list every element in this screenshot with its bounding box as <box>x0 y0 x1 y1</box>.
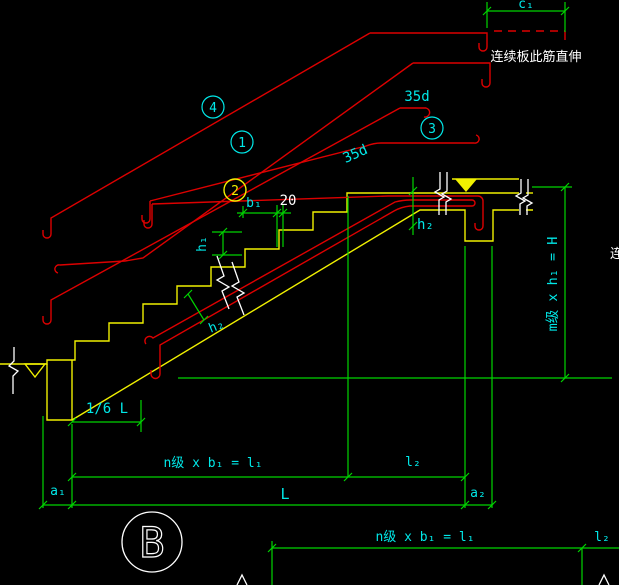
dim-nosing-20-label: 20 <box>280 193 297 209</box>
detail-mark-letter: B <box>139 518 164 567</box>
flight-end-face <box>47 360 72 420</box>
dim-h2-slab-lines <box>188 294 204 320</box>
level-symbol-lower <box>25 364 45 377</box>
stair-outline <box>0 179 533 420</box>
stair-soffit-and-beam <box>72 210 533 420</box>
stair-reinforcement-detail-drawing: 4 1 2 3 c₁ 连续板此筋直伸 35d 35d b₁ 20 h₁ h₂ h… <box>0 0 619 585</box>
dim-bottom-row-lines <box>272 541 619 585</box>
anchorage-35d-top-label: 35d <box>404 89 429 105</box>
dim-sixth-l-label: 1/6 L <box>86 401 128 417</box>
annotations: c₁ 连续板此筋直伸 35d 35d b₁ 20 h₁ h₂ h₂ m级 x h… <box>50 0 619 545</box>
dim-b1-label: b₁ <box>246 196 262 211</box>
dim-run-row-lines <box>72 196 465 477</box>
rebar-4-line <box>43 33 487 238</box>
cad-drawing-canvas: 4 1 2 3 c₁ 连续板此筋直伸 35d 35d b₁ 20 h₁ h₂ h… <box>0 0 619 585</box>
dim-c1-label: c₁ <box>518 0 534 12</box>
dim-run-bottom-label: n级 x b₁ = l₁ <box>375 530 474 545</box>
bar-tag-3-label: 3 <box>428 122 436 137</box>
dim-l2-label: l₂ <box>405 455 421 470</box>
dim-h2-slab-label: h₂ <box>207 317 227 337</box>
bar-tag-4-label: 4 <box>209 101 217 116</box>
dim-h1-label: h₁ <box>195 236 210 252</box>
bar-tag-1-label: 1 <box>238 136 246 151</box>
dim-run-label: n级 x b₁ = l₁ <box>163 456 262 471</box>
slab-break-line <box>217 256 244 315</box>
dim-l2-bottom-label: l₂ <box>594 530 610 545</box>
dimension-lines <box>39 2 619 585</box>
dim-h2-landing-label: h₂ <box>417 217 434 233</box>
dim-total-rise-label: m级 x h₁ = H <box>545 237 561 332</box>
dim-total-length-label: L <box>280 485 289 503</box>
floor-break-line <box>9 347 18 394</box>
note-right-edge-partial: 连 <box>610 246 619 262</box>
section-caret-marks <box>237 575 609 585</box>
dim-a1-label: a₁ <box>50 484 66 499</box>
detail-mark: B <box>122 512 182 572</box>
level-symbol-upper <box>455 179 477 192</box>
extension-lines-right <box>465 246 492 508</box>
note-continuous-slab: 连续板此筋直伸 <box>490 49 581 65</box>
bar-tag-2-label: 2 <box>231 184 239 199</box>
dim-a2-label: a₂ <box>470 486 486 501</box>
rebar-lines <box>43 31 565 379</box>
bar-tags: 4 1 2 3 <box>202 96 443 201</box>
